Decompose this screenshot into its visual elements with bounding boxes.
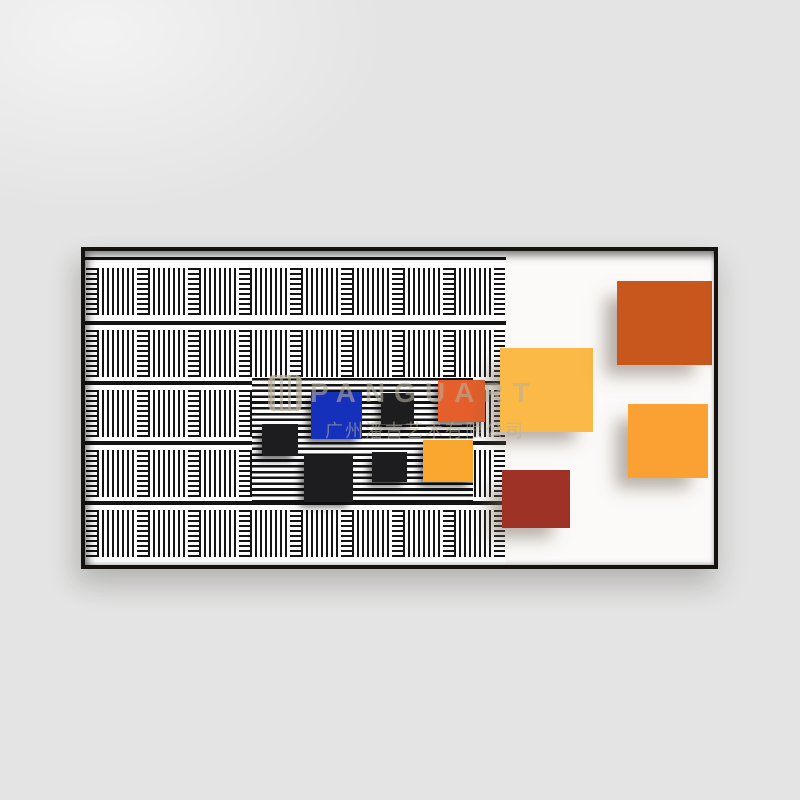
square-golden-yellow <box>500 348 593 432</box>
square-black-medium <box>304 455 353 502</box>
square-black-small-3 <box>372 452 407 482</box>
square-orange-red <box>438 380 485 422</box>
square-burnt-orange <box>617 281 712 365</box>
square-amber-small <box>423 440 473 482</box>
square-brick-red <box>502 470 570 528</box>
square-blue <box>311 392 362 439</box>
square-black-small-2 <box>381 393 414 424</box>
framed-artwork: PANGUART 广州潘古艺术有限公司 <box>81 247 718 569</box>
product-photo: PANGUART 广州潘古艺术有限公司 <box>0 0 800 800</box>
square-black-small-1 <box>262 424 298 456</box>
squares-layer <box>85 251 714 565</box>
square-amber-large <box>628 404 708 478</box>
canvas: PANGUART 广州潘古艺术有限公司 <box>85 251 714 565</box>
